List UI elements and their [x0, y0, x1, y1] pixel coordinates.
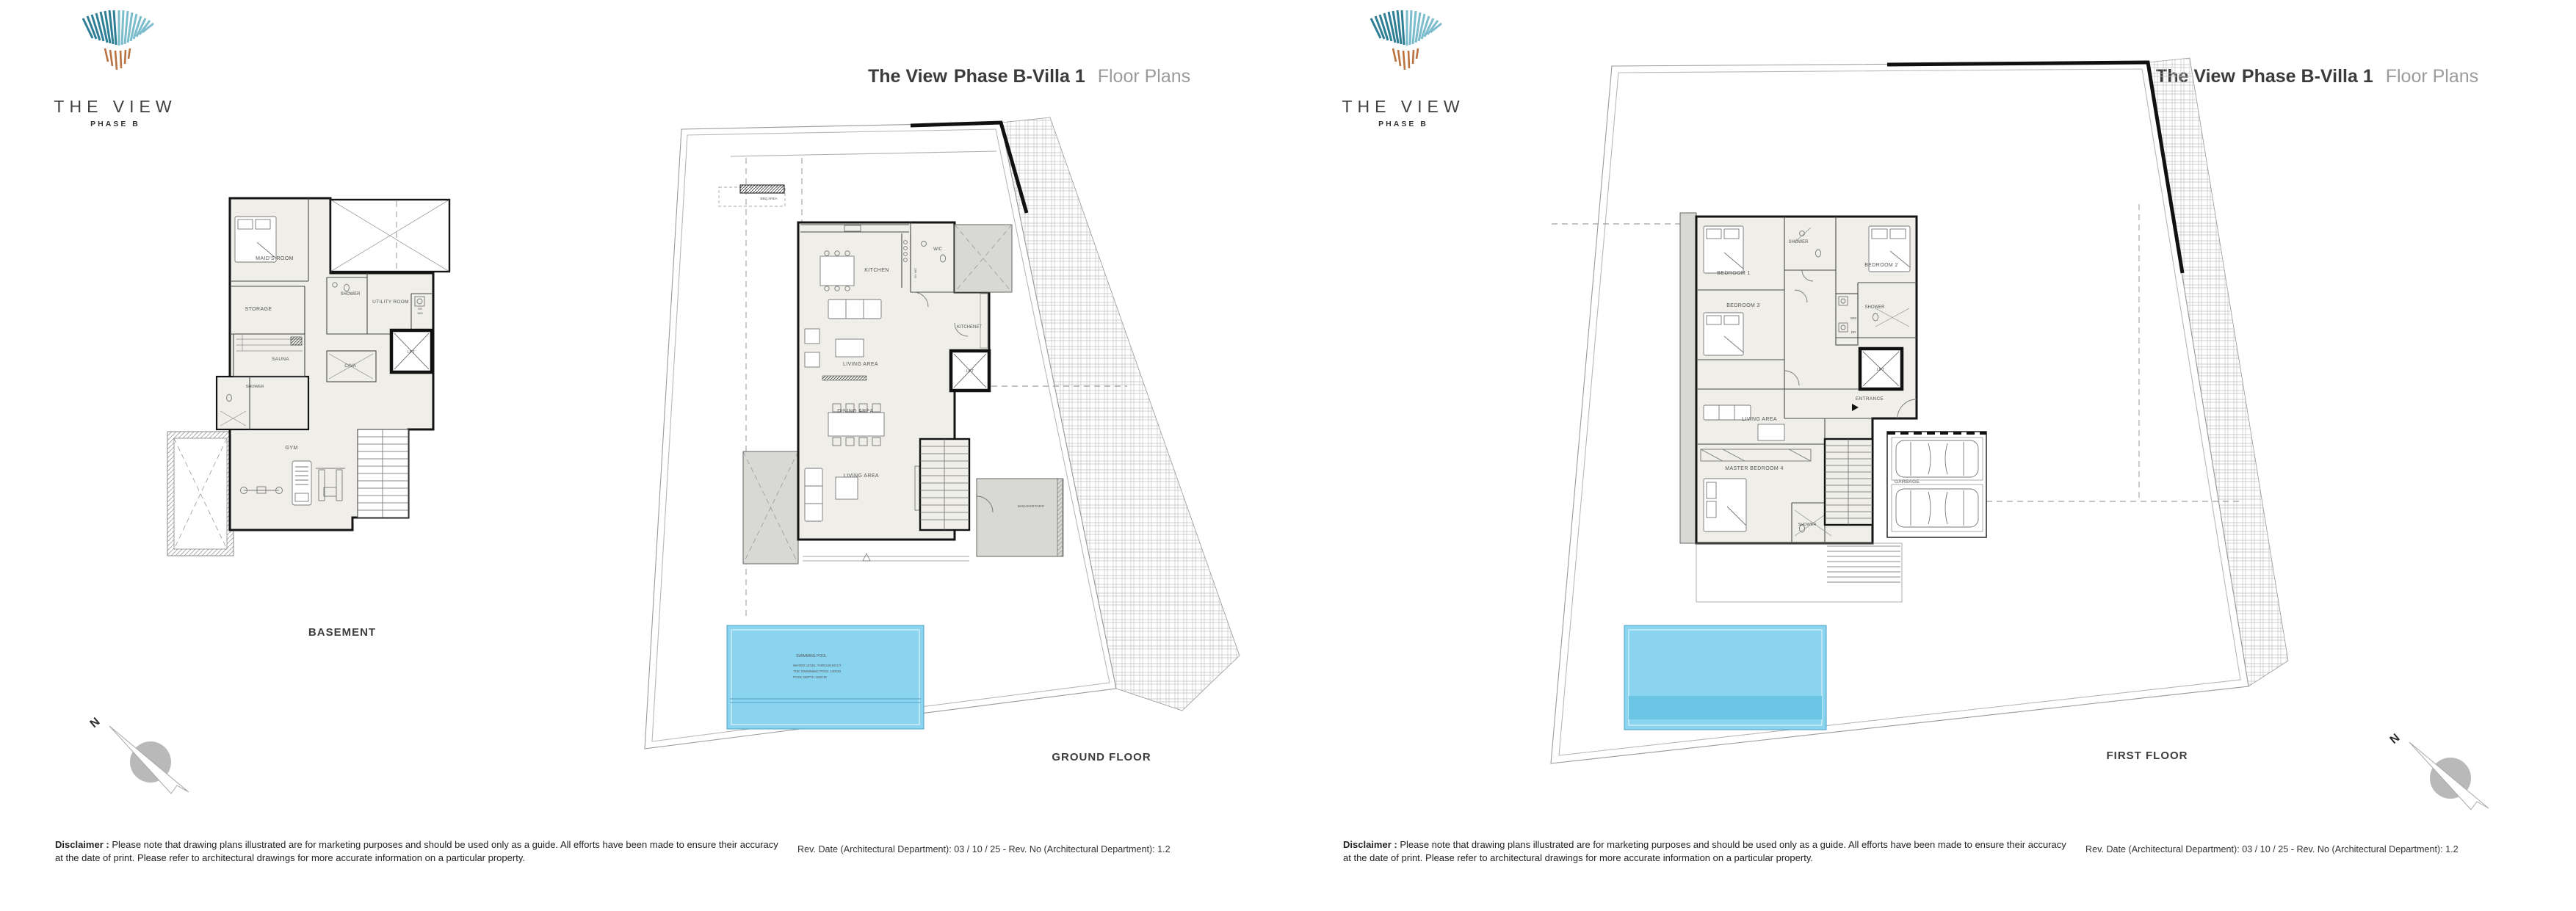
room-label: GYM: [285, 446, 297, 451]
compass-icon: N: [2388, 732, 2489, 810]
bbq-area: BBQ AREA: [719, 185, 785, 206]
paved-area: [2148, 58, 2288, 686]
compass-north-label: N: [88, 716, 103, 730]
room-label: LIVING AREA: [1742, 417, 1777, 422]
first-floor-plan: LIFT: [1551, 58, 2288, 763]
ground-terrace-left: [743, 451, 798, 564]
room-label: CAVA: [344, 364, 355, 369]
sheet-basement-ground: THE VIEW PHASE B The ViewPhase B-Villa 1…: [0, 0, 1288, 911]
basement-roof-terrace: [330, 200, 449, 272]
room-label: KITCHENET: [957, 325, 982, 330]
room-label: W/C: [933, 247, 942, 252]
room-label: BBQ AREA: [760, 197, 778, 200]
room-label: BEDROOM 3: [1726, 303, 1760, 308]
room-label: SAUNA: [272, 357, 289, 362]
revision-note: Rev. Date (Architectural Department): 03…: [2085, 844, 2459, 854]
room-label: SHOWER: [1865, 305, 1886, 310]
bed: [235, 217, 276, 262]
compass-icon: N: [88, 716, 189, 794]
basement-caption: BASEMENT: [308, 626, 376, 639]
ground-caption: GROUND FLOOR: [1052, 751, 1151, 763]
basement-lift: LIFT: [391, 330, 432, 372]
room-label: MASTER BEDROOM 4: [1725, 466, 1784, 471]
ground-stairs: [920, 439, 969, 530]
swimming-pool: SWIMMING POOL WATER LEVEL THROUGHOUT THE…: [727, 625, 924, 729]
pool-note-1: WATER LEVEL THROUGHOUT: [793, 664, 842, 667]
room-label: SHOWER: [246, 385, 264, 389]
porch-edge: [803, 554, 969, 561]
pool-note-2: THE SWIMMING POOL 140CM: [793, 669, 841, 673]
garage: [1887, 432, 1986, 537]
room-label: WM: [417, 311, 422, 315]
ground-roof-patch: [955, 225, 1012, 292]
disclaimer-text: Disclaimer : Please note that drawing pl…: [1343, 838, 2070, 865]
first-caption: FIRST FLOOR: [2107, 750, 2188, 762]
room-label: DINING AREA: [837, 409, 874, 414]
room-label: WM: [1850, 316, 1856, 320]
pool-title: SWIMMING POOL: [796, 654, 827, 658]
boundary-wall-strip: [1680, 213, 1696, 543]
swimming-pool: [1624, 625, 1826, 730]
bed: [1704, 479, 1746, 531]
paved-area: [1001, 117, 1240, 711]
room-label: STORAGE: [245, 307, 272, 312]
bed: [1704, 226, 1743, 273]
sheet-first-floor: THE VIEW PHASE B The ViewPhase B-Villa 1…: [1288, 0, 2576, 911]
room-label: BEDROOM 1: [1717, 271, 1751, 276]
disclaimer-text: Disclaimer : Please note that drawing pl…: [55, 838, 782, 865]
room-label: LIVING AREA: [844, 473, 879, 479]
room-label: OV MIC: [913, 268, 917, 278]
room-label: SHOWER: [341, 292, 361, 297]
room-label: UTILITY ROOM: [372, 300, 409, 305]
room-label: LIFT: [408, 350, 415, 355]
bed: [1704, 313, 1743, 355]
room-label: LIFT: [966, 369, 974, 374]
room-label: ΜΗΧΑΝΟΣΤΑΣΙΟ: [1018, 504, 1045, 508]
site-boundary-thick: [1887, 62, 2182, 273]
ground-floor-plan: BBQ AREA: [645, 117, 1240, 763]
outdoor-steps: [1696, 543, 1902, 602]
disclaimer-label: Disclaimer :: [55, 839, 109, 850]
room-label: SHOWER: [1789, 240, 1809, 244]
basement-lightwell: [167, 432, 234, 556]
room-label: DR: [418, 307, 422, 311]
room-label: MAID'S ROOM: [256, 256, 294, 261]
room-label: LIVING AREA: [843, 362, 878, 367]
room-label: GARBAGE: [1895, 479, 1920, 484]
first-stairs: [1825, 439, 1873, 525]
room-label: KITCHEN: [864, 268, 889, 273]
right-sheet-plan: LIFT: [1288, 0, 2576, 911]
disclaimer-label: Disclaimer :: [1343, 839, 1397, 850]
pool-note-3: POOL DEPTH 150CM: [793, 675, 827, 679]
basement-floor-plan: LIFT: [167, 198, 449, 639]
room-label: LIFT: [1877, 368, 1884, 372]
plant-room: ΜΗΧΑΝΟΣΤΑΣΙΟ: [977, 479, 1063, 556]
compass-north-label: N: [2388, 732, 2403, 747]
room-label: DR: [1851, 330, 1856, 334]
room-label: SHOWER: [1798, 523, 1817, 527]
room-label: BEDROOM 2: [1864, 263, 1898, 268]
revision-note: Rev. Date (Architectural Department): 03…: [797, 844, 1171, 854]
first-lift: LIFT: [1860, 349, 1902, 389]
room-label: ENTRANCE: [1856, 396, 1884, 402]
left-sheet-plans: LIFT: [0, 0, 1288, 911]
basement-stairs: [358, 429, 408, 518]
ground-lift: LIFT: [951, 351, 989, 391]
